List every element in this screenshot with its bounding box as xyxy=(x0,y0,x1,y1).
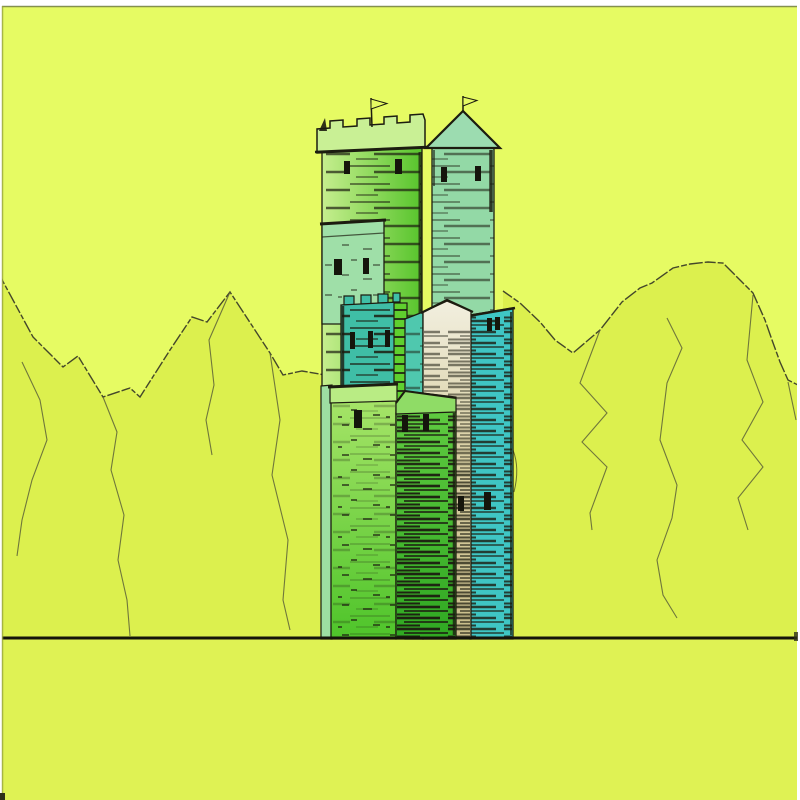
tan-window xyxy=(458,496,464,511)
towers-illustration xyxy=(0,0,800,800)
tower-front-left xyxy=(321,384,398,639)
illustration-canvas xyxy=(0,0,800,800)
tower-cyan xyxy=(468,308,517,639)
front-left-hatching xyxy=(333,404,395,636)
corner-mark-right xyxy=(794,632,798,641)
front-mid-hatching-dense xyxy=(397,470,455,638)
front-left-window xyxy=(354,410,362,428)
corner-mark-bottom-left xyxy=(0,793,5,800)
cyan-hatching xyxy=(471,316,512,638)
tower-teal xyxy=(341,293,400,392)
scene xyxy=(0,0,800,800)
tower-front-mid xyxy=(396,391,456,639)
ground xyxy=(0,638,800,800)
